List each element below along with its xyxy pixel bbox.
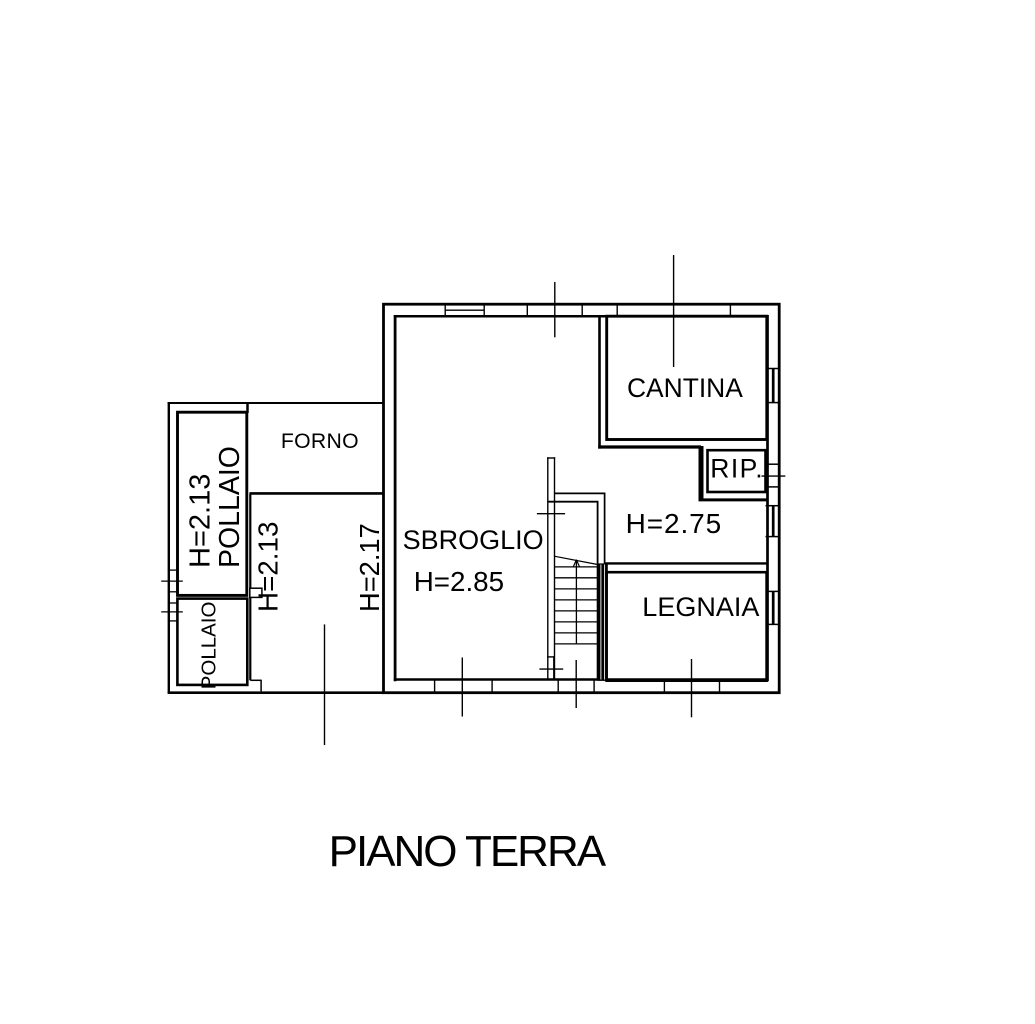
svg-text:RIP.: RIP. [710,454,764,484]
svg-text:H=2.17: H=2.17 [354,523,385,612]
svg-text:SBROGLIO: SBROGLIO [403,525,544,555]
svg-text:POLLAIO: POLLAIO [214,446,246,568]
svg-text:PIANO TERRA: PIANO TERRA [329,827,607,876]
svg-text:POLLAIO: POLLAIO [198,602,221,690]
svg-text:LEGNAIA: LEGNAIA [642,592,759,622]
svg-text:FORNO: FORNO [281,430,359,453]
svg-text:CANTINA: CANTINA [627,373,743,403]
svg-text:H=2.85: H=2.85 [414,566,504,597]
svg-text:H=2.13: H=2.13 [184,474,216,568]
svg-text:H=2.75: H=2.75 [626,508,722,539]
svg-text:H=2.13: H=2.13 [253,522,284,612]
